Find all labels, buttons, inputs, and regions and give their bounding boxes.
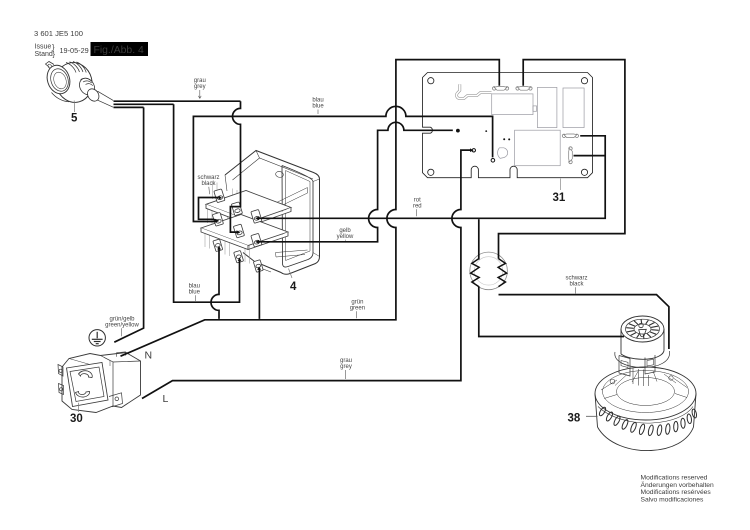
svg-text:grün/gelb: grün/gelb bbox=[109, 317, 135, 323]
svg-text:Änderungen vorbehalten: Änderungen vorbehalten bbox=[641, 481, 715, 489]
svg-text:blau: blau bbox=[312, 98, 323, 104]
svg-text:grau: grau bbox=[340, 358, 352, 364]
svg-text:grey: grey bbox=[194, 84, 206, 90]
svg-text:grün: grün bbox=[351, 300, 363, 306]
svg-text:schwarz: schwarz bbox=[197, 175, 219, 181]
svg-text:yellow: yellow bbox=[337, 234, 354, 240]
svg-text:grey: grey bbox=[340, 364, 352, 370]
svg-text:19-05-29: 19-05-29 bbox=[60, 46, 89, 55]
svg-text:4: 4 bbox=[290, 281, 297, 293]
svg-text:black: black bbox=[569, 282, 584, 288]
svg-text:red: red bbox=[413, 204, 422, 210]
svg-text:black: black bbox=[201, 181, 216, 187]
svg-text:green: green bbox=[350, 306, 365, 312]
svg-text:Modifications resérvées: Modifications resérvées bbox=[641, 489, 712, 496]
svg-text:5: 5 bbox=[71, 113, 78, 125]
svg-text:L: L bbox=[163, 393, 169, 405]
svg-text:Fig./Abb. 4: Fig./Abb. 4 bbox=[94, 45, 144, 56]
svg-text:blau: blau bbox=[189, 284, 200, 290]
svg-text:38: 38 bbox=[568, 413, 581, 425]
svg-text:N: N bbox=[145, 350, 153, 362]
svg-text:gelb: gelb bbox=[339, 228, 351, 234]
svg-text:rot: rot bbox=[414, 198, 421, 204]
svg-text:Salvo modificaciones: Salvo modificaciones bbox=[641, 496, 704, 503]
svg-text:Stand: Stand bbox=[35, 51, 53, 58]
svg-text:31: 31 bbox=[553, 192, 566, 204]
svg-text:blue: blue bbox=[312, 104, 324, 110]
svg-text:blue: blue bbox=[189, 290, 201, 296]
svg-text:3 601 JE5 100: 3 601 JE5 100 bbox=[34, 29, 83, 38]
svg-text:grau: grau bbox=[194, 78, 206, 84]
svg-text:30: 30 bbox=[70, 413, 83, 425]
svg-text:Issue: Issue bbox=[35, 44, 52, 51]
svg-text:schwarz: schwarz bbox=[565, 276, 587, 282]
svg-text:green/yellow: green/yellow bbox=[105, 323, 139, 329]
svg-text:Modifications reserved: Modifications reserved bbox=[641, 475, 708, 482]
